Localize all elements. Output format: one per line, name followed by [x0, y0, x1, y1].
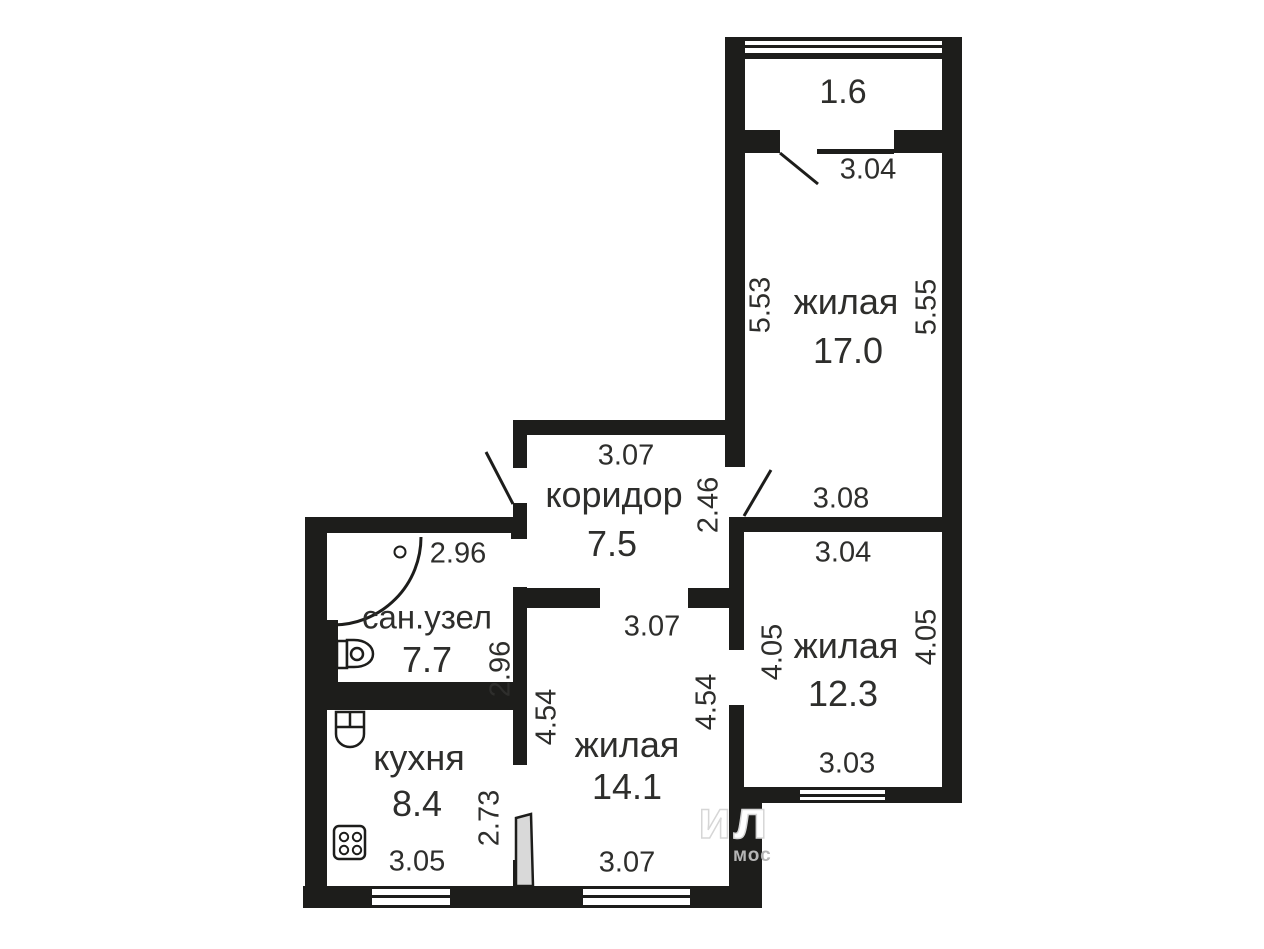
corridor-area-label: 7.5 — [587, 526, 637, 562]
wall — [894, 130, 942, 153]
wall — [729, 517, 744, 650]
wall — [688, 588, 729, 608]
living14-dim-left: 4.54 — [533, 689, 562, 745]
stove-icon — [334, 826, 365, 859]
bathroom-dim-top: 2.96 — [430, 540, 486, 569]
wall — [942, 37, 962, 803]
living14-dim-bottom: 3.07 — [599, 849, 655, 878]
wall — [305, 682, 515, 710]
living17-area-label: 17.0 — [813, 333, 883, 369]
living12-area-label: 12.3 — [808, 676, 878, 712]
kitchen-name-label: кухня — [373, 740, 465, 776]
wall — [730, 517, 962, 532]
living12-name-label: жилая — [794, 628, 899, 664]
living17-name-label: жилая — [794, 284, 899, 320]
fixtures — [334, 640, 373, 859]
corridor-dim-top: 3.07 — [598, 442, 654, 471]
living14-window-icon — [583, 886, 690, 908]
wall — [515, 588, 600, 608]
kitchen-dim-bottom: 3.05 — [389, 848, 445, 877]
corridor-dim-right: 2.46 — [695, 477, 724, 533]
wall — [513, 420, 729, 435]
kitchen-door-leaf-icon — [516, 814, 533, 886]
living12-window-icon — [800, 787, 885, 803]
wall — [725, 37, 745, 467]
living17-door-leaf-icon — [744, 470, 771, 516]
bathroom-area-label: 7.7 — [402, 642, 452, 678]
bathroom-dim-right: 2.96 — [487, 641, 516, 697]
living14-dim-right: 4.54 — [693, 674, 722, 730]
entrance-door-leaf-icon — [486, 452, 513, 504]
wall — [305, 517, 527, 533]
living14-dim-top: 3.07 — [624, 613, 680, 642]
living12-dim-bottom: 3.03 — [819, 750, 875, 779]
sink-icon — [336, 712, 364, 747]
living17-dim-bottom: 3.08 — [813, 485, 869, 514]
living17-dim-left: 5.53 — [747, 277, 776, 333]
kitchen-dim-right: 2.73 — [476, 790, 505, 846]
wall — [511, 517, 527, 539]
kitchen-area-label: 8.4 — [392, 786, 442, 822]
living12-dim-top: 3.04 — [815, 539, 871, 568]
living17-dim-right: 5.55 — [913, 279, 942, 335]
living12-dim-left: 4.05 — [759, 624, 788, 680]
kitchen-window-icon — [372, 886, 450, 908]
wall — [745, 130, 780, 153]
bathroom-name-label: сан.узел — [362, 601, 492, 634]
living12-dim-right: 4.05 — [913, 609, 942, 665]
corridor-name-label: коридор — [545, 477, 682, 513]
living14-name-label: жилая — [575, 727, 680, 763]
toilet-icon — [337, 640, 373, 668]
balcony-glazing-icon — [745, 37, 942, 59]
wall — [303, 886, 762, 908]
wall — [513, 420, 527, 468]
balcony-door-leaf-icon — [780, 153, 818, 184]
balcony-dim-bottom: 3.04 — [840, 156, 896, 185]
watermark-large-text: ил — [698, 789, 770, 851]
wall — [305, 517, 327, 908]
watermark-small-text: мос — [733, 845, 772, 867]
floorplan-canvas: 1.6 3.04 жилая 17.0 5.53 5.55 3.08 3.07 … — [0, 0, 1264, 949]
bathroom-door-knob-icon — [395, 547, 406, 558]
balcony-area-label: 1.6 — [819, 75, 866, 109]
living14-area-label: 14.1 — [592, 769, 662, 805]
